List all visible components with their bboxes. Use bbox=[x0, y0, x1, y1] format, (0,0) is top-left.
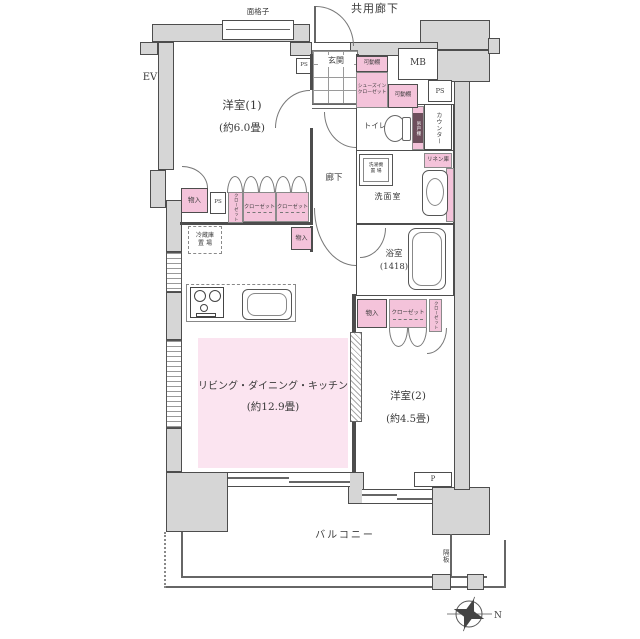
ldk-window-sash-right bbox=[289, 481, 350, 483]
room2-window-sash-left bbox=[362, 494, 397, 496]
ldk-room2-sliding-door bbox=[350, 332, 362, 422]
wall-room1-bottom bbox=[180, 222, 313, 225]
compass-north-label: N bbox=[494, 611, 502, 621]
fridge-line1: 冷蔵庫 bbox=[196, 232, 214, 240]
toilet-tank bbox=[402, 117, 411, 141]
lattice-window-mullion bbox=[226, 29, 290, 30]
wall-right-main bbox=[454, 80, 470, 490]
shoes-closet-line2: クローゼット bbox=[358, 90, 387, 96]
washroom-label: 洗面室 bbox=[360, 191, 416, 203]
wall-ldk-room2-lower bbox=[352, 422, 356, 472]
washer-label: 洗濯機 置 場 bbox=[359, 158, 393, 180]
wall-step-right-of-window bbox=[290, 42, 312, 56]
wall-left-c bbox=[166, 428, 182, 472]
room2-size-label: (約4.5畳) bbox=[362, 411, 454, 427]
closet-rail-b bbox=[280, 212, 305, 213]
fridge-line2: 置 場 bbox=[198, 240, 212, 248]
common-corridor-label: 共用廊下 bbox=[340, 2, 410, 16]
storage-corridor: 物入 bbox=[291, 227, 312, 250]
elevator-label: EV bbox=[138, 70, 162, 84]
lattice-window bbox=[222, 20, 294, 40]
stove-grill bbox=[196, 313, 216, 317]
room2-door-arc bbox=[427, 328, 447, 354]
wall-bottom-right-block bbox=[432, 487, 490, 535]
linen-closet: リネン庫 bbox=[424, 153, 452, 168]
floor-plan: 共用廊下 面格子 EV 玄関 PS トイレ 吊戸棚 カウンター 洗面室 洗濯機 … bbox=[0, 0, 640, 639]
balcony-outer-right bbox=[504, 540, 506, 588]
washbasin-bowl bbox=[426, 178, 444, 206]
balcony-label: バルコニー bbox=[300, 528, 390, 543]
closet-fold-arc-5 bbox=[291, 176, 307, 193]
left-window-2 bbox=[166, 340, 182, 428]
entrance-step-line bbox=[312, 104, 358, 109]
wall-top-right-b bbox=[437, 50, 490, 82]
partition-label: 隔板 bbox=[440, 543, 450, 569]
room2-window-sash-right bbox=[397, 498, 432, 500]
stove-burner-small bbox=[200, 304, 208, 312]
mb-box: MB bbox=[398, 48, 438, 80]
compass: N bbox=[440, 588, 510, 638]
movable-shelf-top: 可動棚 bbox=[356, 56, 388, 72]
room2-fold-arc-1 bbox=[389, 328, 408, 347]
bathtub-inner bbox=[412, 232, 442, 286]
lattice-label: 面格子 bbox=[234, 6, 282, 17]
hanging-shelf-badge: 吊戸棚 bbox=[413, 113, 423, 143]
closet-a-room1: クローゼット bbox=[243, 192, 276, 222]
wall-corridor-left-upper bbox=[310, 54, 313, 90]
closet-fold-arc-3 bbox=[259, 176, 275, 193]
wall-left-stub bbox=[140, 42, 158, 55]
closet-room2: クローゼット bbox=[389, 299, 427, 328]
room1-door-arc bbox=[275, 90, 310, 128]
wall-left-offset bbox=[150, 170, 166, 208]
room2-fold-arc-2 bbox=[408, 328, 427, 347]
left-window-1 bbox=[166, 252, 182, 292]
ldk-label: リビング・ダイニング・キッチン bbox=[198, 378, 348, 394]
closet-fold-arc-4 bbox=[275, 176, 291, 193]
p-box: P bbox=[414, 472, 452, 487]
wall-ldk-room2-upper bbox=[352, 294, 356, 332]
ldk-window-sash-left bbox=[228, 477, 289, 479]
room1-storage-door-arc bbox=[182, 166, 208, 188]
shoes-in-closet: シューズイン クローゼット bbox=[356, 72, 388, 108]
movable-shelf-right: 可動棚 bbox=[388, 84, 418, 108]
ldk-size-label: (約12.9畳) bbox=[198, 400, 348, 416]
fridge-space: 冷蔵庫 置 場 bbox=[188, 226, 222, 254]
wall-bottom-left-block bbox=[166, 472, 228, 532]
wall-left-b bbox=[166, 292, 182, 340]
wall-corridor-left-lower bbox=[310, 128, 313, 224]
wall-left-upper bbox=[158, 42, 174, 170]
toilet-door-arc bbox=[324, 112, 356, 148]
wall-left-a bbox=[166, 200, 182, 252]
storage-room2: 物入 bbox=[357, 299, 387, 328]
stove-burner-right bbox=[209, 290, 221, 302]
wall-top-right-notch bbox=[488, 38, 500, 54]
closet-rail-a bbox=[247, 212, 272, 213]
washroom-door-arc bbox=[314, 208, 356, 266]
balcony-dotted-edge bbox=[164, 532, 168, 588]
washer-label-line2: 置 場 bbox=[370, 169, 381, 175]
stove-burner-left bbox=[194, 290, 206, 302]
closet-b-room1: クローゼット bbox=[276, 192, 309, 222]
ps-box-room1: PS bbox=[210, 192, 226, 214]
entrance-label: 玄関 bbox=[318, 55, 354, 67]
corridor-label: 廊下 bbox=[320, 173, 348, 185]
storage-room1: 物入 bbox=[181, 188, 208, 213]
kitchen-sink-bowl bbox=[247, 293, 287, 316]
closet-fold-arc-1 bbox=[227, 176, 243, 193]
ps-box-right: PS bbox=[428, 80, 452, 102]
counter-label: カウンター bbox=[432, 108, 444, 148]
room2-label: 洋室(2) bbox=[362, 389, 454, 405]
closet-rail-room2 bbox=[393, 319, 423, 320]
closet-fold-arc-2 bbox=[243, 176, 259, 193]
closet-narrow-room1: クローゼット bbox=[228, 192, 243, 223]
balcony-partition-line bbox=[450, 534, 452, 576]
balcony-inner-left bbox=[181, 532, 183, 578]
ldk-balcony-window bbox=[228, 472, 350, 487]
room2-balcony-window bbox=[362, 489, 432, 504]
